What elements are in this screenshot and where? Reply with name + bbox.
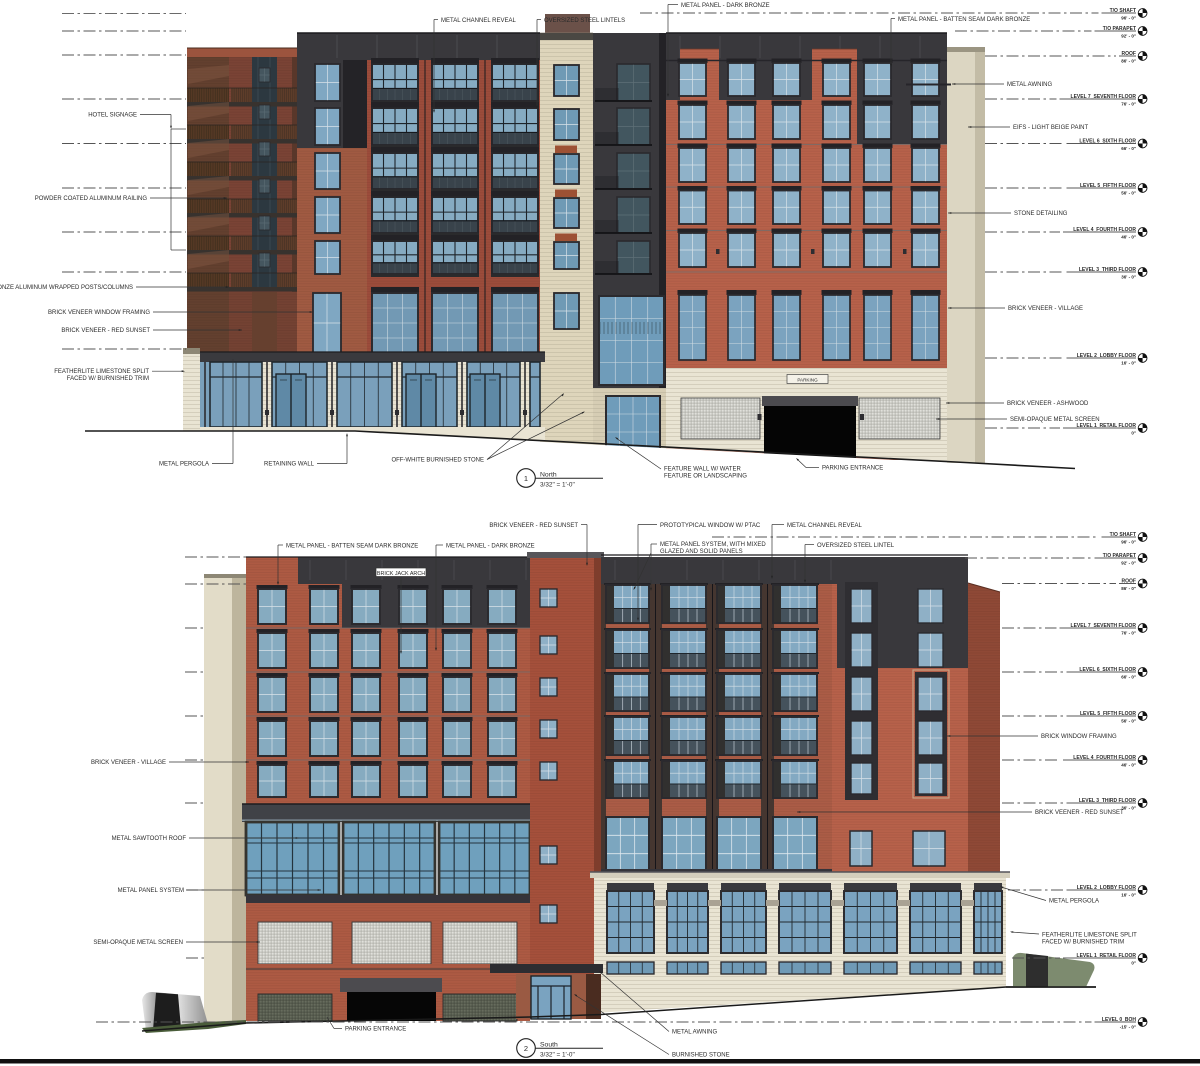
svg-text:FEATHERLITE LIMESTONE SPLIT: FEATHERLITE LIMESTONE SPLIT: [54, 369, 149, 375]
svg-text:BRICK VENEER - RED SUNSET: BRICK VENEER - RED SUNSET: [489, 523, 578, 529]
svg-text:-15' - 0": -15' - 0": [1120, 1024, 1136, 1029]
svg-text:FACED W/ BURNISHED TRIM: FACED W/ BURNISHED TRIM: [67, 376, 149, 382]
svg-text:BRICK VENEER - RED SUNSET: BRICK VENEER - RED SUNSET: [61, 328, 150, 334]
svg-text:1: 1: [524, 474, 528, 483]
svg-text:56' - 0": 56' - 0": [1121, 190, 1136, 195]
svg-text:86' - 0": 86' - 0": [1121, 586, 1136, 591]
svg-text:36' - 0": 36' - 0": [1121, 274, 1136, 279]
svg-text:EIFS - LIGHT BEIGE PAINT: EIFS - LIGHT BEIGE PAINT: [1013, 125, 1088, 131]
svg-text:PARKING: PARKING: [797, 378, 818, 383]
svg-text:METAL PANEL - BATTEN SEAM DARK: METAL PANEL - BATTEN SEAM DARK BRONZE: [286, 544, 418, 550]
svg-text:HOTEL SIGNAGE: HOTEL SIGNAGE: [88, 113, 137, 119]
svg-text:96' - 0": 96' - 0": [1121, 539, 1136, 544]
svg-text:METAL CHANNEL REVEAL: METAL CHANNEL REVEAL: [787, 523, 862, 529]
svg-text:RETAINING WALL: RETAINING WALL: [264, 462, 315, 468]
svg-text:FEATURE WALL W/ WATER: FEATURE WALL W/ WATER: [664, 467, 741, 473]
svg-text:92' - 0": 92' - 0": [1121, 33, 1136, 38]
svg-text:76' - 0": 76' - 0": [1121, 101, 1136, 106]
svg-text:METAL PERGOLA: METAL PERGOLA: [159, 462, 209, 468]
svg-text:PROTOTYPICAL WINDOW W/ PTAC: PROTOTYPICAL WINDOW W/ PTAC: [660, 523, 761, 529]
svg-text:METAL PANEL SYSTEM: METAL PANEL SYSTEM: [118, 888, 184, 894]
svg-text:66' - 0": 66' - 0": [1121, 674, 1136, 679]
svg-text:16' - 0": 16' - 0": [1121, 360, 1136, 365]
svg-text:FEATURE OR LANDSCAPING: FEATURE OR LANDSCAPING: [664, 474, 747, 480]
svg-text:BRICK VENEER - ASHWOOD: BRICK VENEER - ASHWOOD: [1007, 401, 1089, 407]
svg-text:0": 0": [1131, 430, 1136, 435]
svg-text:2: 2: [524, 1044, 528, 1053]
svg-text:METAL PANEL - DARK BRONZE: METAL PANEL - DARK BRONZE: [446, 544, 535, 550]
svg-text:76' - 0": 76' - 0": [1121, 630, 1136, 635]
svg-text:SEMI-OPAQUE METAL SCREEN: SEMI-OPAQUE METAL SCREEN: [93, 940, 183, 946]
svg-text:0": 0": [1131, 960, 1136, 965]
svg-text:3/32" = 1'-0": 3/32" = 1'-0": [540, 1052, 575, 1059]
svg-text:North: North: [540, 472, 557, 479]
svg-text:METAL AWNING: METAL AWNING: [672, 1030, 717, 1036]
svg-text:BRICK WINDOW FRAMING: BRICK WINDOW FRAMING: [1041, 734, 1117, 740]
svg-text:FEATHERLITE LIMESTONE SPLIT: FEATHERLITE LIMESTONE SPLIT: [1042, 933, 1137, 939]
svg-text:92' - 0": 92' - 0": [1121, 560, 1136, 565]
svg-text:South: South: [540, 1042, 558, 1049]
svg-text:PARKING ENTRANCE: PARKING ENTRANCE: [345, 1027, 406, 1033]
svg-text:46' - 0": 46' - 0": [1121, 234, 1136, 239]
svg-text:OVERSIZED STEEL LINTELS: OVERSIZED STEEL LINTELS: [544, 18, 625, 24]
svg-text:GLAZED AND SOLID PANELS: GLAZED AND SOLID PANELS: [660, 549, 743, 555]
svg-text:METAL PANEL - DARK BRONZE: METAL PANEL - DARK BRONZE: [681, 3, 770, 9]
svg-text:3/32" = 1'-0": 3/32" = 1'-0": [540, 482, 575, 489]
svg-text:PARKING ENTRANCE: PARKING ENTRANCE: [822, 466, 883, 472]
svg-text:56' - 0": 56' - 0": [1121, 718, 1136, 723]
svg-text:66' - 0": 66' - 0": [1121, 146, 1136, 151]
svg-text:METAL PERGOLA: METAL PERGOLA: [1049, 899, 1099, 905]
svg-text:16' - 0": 16' - 0": [1121, 892, 1136, 897]
svg-text:96' - 0": 96' - 0": [1121, 15, 1136, 20]
svg-text:STONE DETAILING: STONE DETAILING: [1014, 211, 1068, 217]
svg-text:METAL PANEL SYSTEM, WITH MIXED: METAL PANEL SYSTEM, WITH MIXED: [660, 542, 766, 548]
svg-text:OVERSIZED STEEL LINTEL: OVERSIZED STEEL LINTEL: [817, 543, 895, 549]
svg-text:OFF-WHITE BURNISHED STONE: OFF-WHITE BURNISHED STONE: [391, 458, 484, 464]
svg-text:METAL PANEL - BATTEN SEAM DARK: METAL PANEL - BATTEN SEAM DARK BRONZE: [898, 17, 1030, 23]
svg-text:FACED W/ BURNISHED TRIM: FACED W/ BURNISHED TRIM: [1042, 940, 1124, 946]
svg-text:BRICK JACK ARCH: BRICK JACK ARCH: [377, 571, 425, 577]
svg-text:46' - 0": 46' - 0": [1121, 762, 1136, 767]
svg-text:SEMI-OPAQUE METAL SCREEN: SEMI-OPAQUE METAL SCREEN: [1010, 417, 1100, 423]
svg-text:BRICK VENEER - VILLAGE: BRICK VENEER - VILLAGE: [91, 760, 166, 766]
svg-text:BRICK VENEER - VILLAGE: BRICK VENEER - VILLAGE: [1008, 306, 1083, 312]
svg-text:METAL SAWTOOTH ROOF: METAL SAWTOOTH ROOF: [112, 836, 187, 842]
svg-text:BRONZE ALUMINUM WRAPPED POSTS/: BRONZE ALUMINUM WRAPPED POSTS/COLUMNS: [0, 285, 133, 291]
svg-text:BURNISHED STONE: BURNISHED STONE: [672, 1053, 730, 1059]
svg-text:POWDER COATED ALUMINUM RAILING: POWDER COATED ALUMINUM RAILING: [35, 196, 148, 202]
svg-text:BRICK VENEER WINDOW FRAMING: BRICK VENEER WINDOW FRAMING: [48, 310, 150, 316]
svg-text:86' - 0": 86' - 0": [1121, 58, 1136, 63]
svg-text:BRICK VEENER - RED SUNSET: BRICK VEENER - RED SUNSET: [1035, 810, 1124, 816]
svg-text:METAL AWNING: METAL AWNING: [1007, 82, 1052, 88]
svg-text:METAL CHANNEL REVEAL: METAL CHANNEL REVEAL: [441, 18, 516, 24]
